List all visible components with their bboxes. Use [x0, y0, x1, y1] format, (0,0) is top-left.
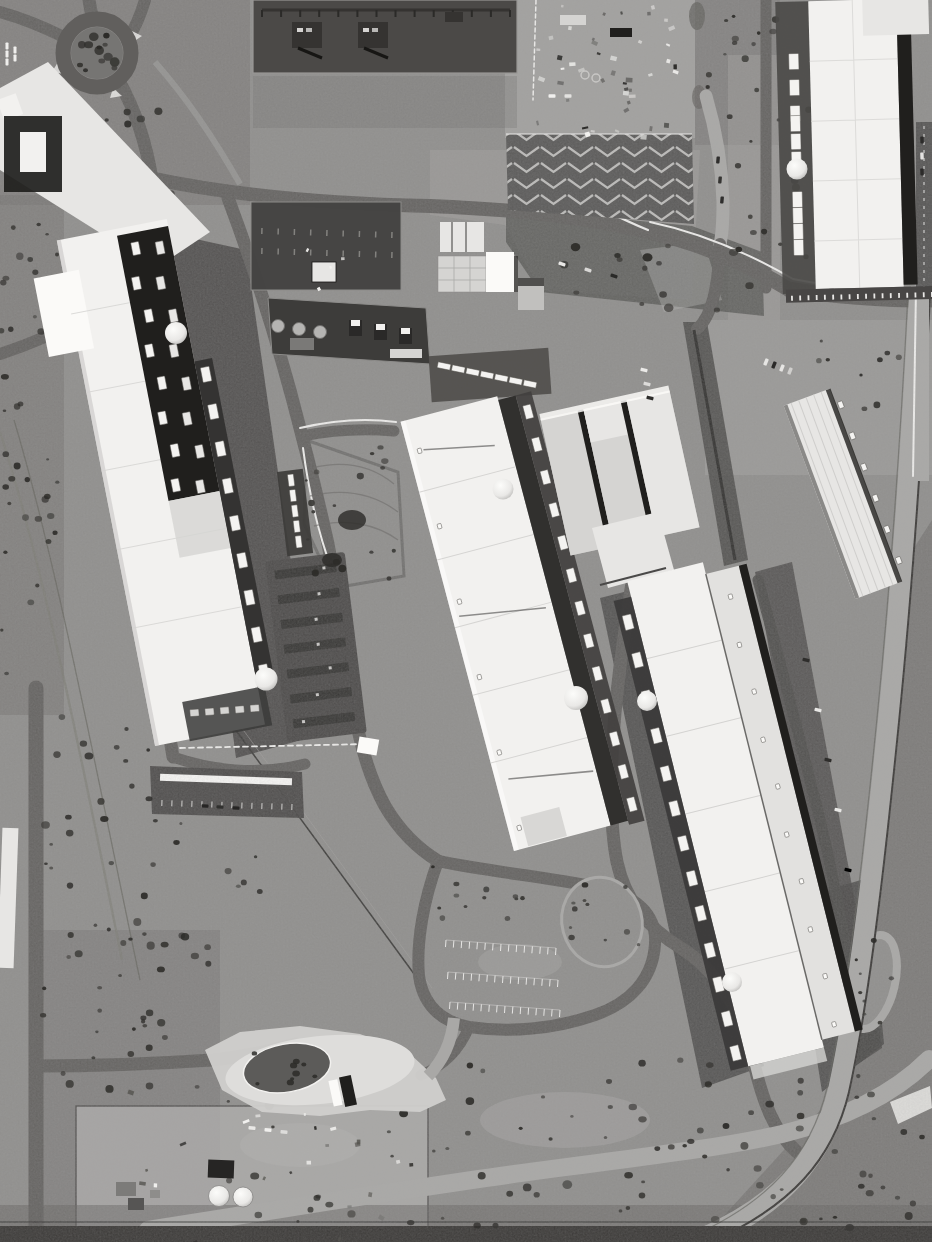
clutter [357, 1140, 361, 1145]
tree [112, 66, 118, 71]
transformer-top [376, 324, 385, 330]
bush [40, 1013, 46, 1017]
clutter [561, 5, 564, 8]
bush [614, 253, 620, 258]
vehicle [216, 805, 223, 809]
bush [3, 451, 10, 457]
bush [642, 266, 647, 271]
cooling-unit [789, 79, 799, 95]
bush [94, 924, 98, 927]
bush [312, 570, 319, 577]
bush [466, 1097, 475, 1105]
bush [654, 1146, 660, 1151]
cooling-unit [220, 707, 229, 715]
bush [723, 53, 726, 55]
cooling-unit [289, 489, 296, 502]
transformer [292, 22, 322, 48]
bush [14, 463, 21, 470]
bush [236, 885, 241, 888]
bush [75, 950, 83, 957]
equipment-building [390, 349, 422, 358]
bush [858, 1184, 865, 1189]
storage-tank [233, 1187, 253, 1207]
cooling-unit [793, 223, 803, 239]
bush [855, 958, 858, 961]
tree [103, 33, 109, 39]
vehicle [920, 168, 924, 175]
clutter [566, 99, 569, 102]
cooling-unit [752, 689, 757, 695]
bush [53, 531, 58, 536]
bush [732, 41, 737, 45]
bush [153, 819, 158, 823]
cooling-unit [793, 207, 803, 223]
dome-tank [637, 691, 657, 711]
bush [570, 1115, 573, 1118]
bush [27, 599, 34, 605]
bush [44, 863, 48, 866]
warehouse-roof [438, 256, 486, 292]
bush [14, 403, 20, 409]
storage-tank [209, 1186, 230, 1207]
bush [381, 458, 388, 464]
vehicle [716, 156, 720, 163]
bush [569, 926, 572, 929]
bush [638, 1116, 646, 1122]
bush [181, 933, 189, 941]
cooling-unit [789, 53, 799, 69]
bush [3, 409, 7, 412]
transformer [358, 22, 388, 48]
bush [885, 351, 891, 356]
bush [66, 830, 74, 837]
bush [677, 1058, 683, 1063]
bush [687, 1139, 694, 1144]
vehicle [248, 1126, 255, 1130]
shrub [293, 1059, 300, 1064]
bush [377, 445, 383, 449]
bush [771, 1194, 776, 1199]
clutter [341, 257, 345, 260]
bush [483, 887, 489, 893]
bush [35, 516, 42, 522]
bush [697, 1128, 704, 1134]
bush [742, 55, 749, 62]
clutter [568, 26, 572, 30]
bush [706, 1062, 714, 1068]
tree [102, 43, 107, 47]
bush [85, 752, 94, 759]
bush [859, 373, 862, 376]
bush [866, 1190, 874, 1196]
bush [107, 928, 111, 932]
shrub [292, 1071, 300, 1077]
bush [61, 1071, 66, 1076]
shrub [255, 1082, 259, 1085]
bush [833, 1216, 837, 1219]
bush [534, 1192, 540, 1198]
bush [624, 929, 630, 935]
bush [863, 1013, 867, 1016]
cooling-unit [792, 191, 802, 207]
tree-cluster [338, 510, 366, 530]
bush [629, 1104, 637, 1111]
clutter [409, 1163, 413, 1167]
bush [855, 1096, 860, 1100]
transformer-detail [297, 28, 303, 32]
bush [832, 1149, 838, 1154]
clutter [536, 48, 540, 51]
dome-tank [493, 479, 514, 500]
bush [874, 402, 881, 409]
bush [541, 1095, 545, 1098]
transformer-top [401, 328, 410, 334]
bush [3, 551, 7, 554]
bush [97, 1008, 102, 1012]
bush [33, 315, 37, 318]
bush [732, 15, 736, 18]
bush [761, 229, 767, 235]
tree [77, 63, 83, 68]
bush [682, 1144, 687, 1148]
vehicle [549, 94, 556, 97]
dome-tank [722, 972, 742, 992]
bush [296, 1220, 299, 1223]
bush [27, 257, 33, 262]
cooling-unit [190, 709, 199, 717]
bush [549, 1137, 553, 1141]
bush [606, 1079, 612, 1084]
dome-tank [255, 668, 278, 691]
bush [735, 163, 741, 168]
bush [895, 1196, 900, 1200]
aerial-photo-canvas [0, 0, 932, 1242]
bush [407, 1220, 414, 1225]
bush [664, 303, 674, 312]
bush [736, 247, 743, 252]
bush [608, 1105, 613, 1109]
switchgear [445, 12, 463, 22]
oil-tank [314, 326, 327, 339]
bush [369, 551, 373, 554]
bush [656, 261, 662, 266]
bush [431, 865, 435, 868]
clutter [640, 134, 647, 140]
cooling-unit [295, 535, 302, 548]
bush [147, 942, 155, 950]
bush [25, 477, 30, 482]
clutter [629, 89, 632, 92]
trailer-yard [429, 348, 552, 402]
cooling-unit [761, 737, 766, 743]
bush [751, 42, 756, 46]
bush [308, 1207, 314, 1213]
bush [573, 291, 579, 295]
bush [726, 1168, 730, 1171]
vehicle [6, 43, 9, 50]
shrub [287, 1080, 294, 1086]
bush [59, 714, 66, 720]
bush [380, 466, 385, 470]
bush [124, 121, 131, 128]
bush [146, 1010, 153, 1017]
bush [464, 905, 468, 908]
bush [11, 225, 16, 230]
bush [571, 243, 581, 251]
dome-tank [787, 159, 808, 180]
bush [619, 1209, 623, 1212]
vehicle [718, 176, 722, 183]
vehicle [6, 59, 9, 66]
bush [724, 19, 728, 22]
clutter [325, 1144, 329, 1147]
barn-shed [208, 1160, 235, 1179]
bush [506, 1191, 513, 1197]
bush [45, 233, 48, 236]
materials [560, 15, 586, 25]
bush [745, 282, 753, 289]
bush [748, 1110, 754, 1115]
cooling-unit [205, 708, 214, 716]
bush [820, 340, 823, 343]
clutter [304, 1113, 306, 1116]
bush [55, 252, 59, 256]
bush [390, 1155, 393, 1158]
control-building [312, 262, 336, 282]
bush [604, 939, 607, 942]
clutter [255, 1114, 260, 1117]
cooling-unit [287, 474, 294, 487]
transformer-top [351, 320, 360, 326]
materials [610, 28, 632, 37]
bush [705, 1081, 712, 1087]
bush [173, 840, 179, 845]
bush [157, 1019, 165, 1026]
roundabout [63, 19, 131, 87]
cooling-unit [775, 784, 780, 790]
bush [204, 944, 211, 950]
bush [714, 308, 720, 313]
substation-mid-lower [268, 298, 430, 364]
bush [877, 357, 883, 362]
dome-tank [564, 686, 588, 710]
bush [706, 72, 712, 77]
bush [157, 967, 165, 973]
bush [437, 907, 441, 910]
bush [706, 85, 710, 89]
shed-roofs [440, 222, 484, 252]
office-courtyard [20, 132, 46, 172]
bush [572, 906, 578, 911]
bush [754, 88, 759, 93]
bush [756, 1182, 764, 1188]
bush [124, 727, 128, 731]
bush [7, 502, 11, 505]
bush [314, 470, 320, 475]
bush [514, 898, 518, 901]
bush [568, 935, 574, 941]
bush [800, 1218, 808, 1225]
cooling-unit [250, 704, 259, 712]
cooling-unit [728, 594, 733, 600]
bush [798, 1078, 804, 1084]
bush [723, 1123, 730, 1129]
clutter [347, 1205, 351, 1208]
cooling-unit [291, 505, 298, 518]
bush [8, 327, 13, 332]
bush [604, 1136, 607, 1139]
bush [105, 1085, 113, 1093]
bush [453, 882, 459, 886]
bush [47, 513, 54, 519]
clutter [569, 62, 576, 66]
equipment-pad [290, 338, 314, 350]
bush [754, 1165, 762, 1171]
bush [123, 759, 128, 763]
bush [638, 1060, 645, 1067]
shadow [514, 256, 518, 292]
bush [142, 932, 147, 936]
bush [816, 358, 822, 363]
bush [769, 29, 777, 34]
bush [740, 1142, 748, 1150]
bush [826, 358, 830, 361]
vehicle [232, 806, 239, 810]
bush [35, 583, 39, 587]
bush [55, 481, 59, 484]
bush [42, 987, 46, 991]
bush [856, 1074, 860, 1078]
bush [42, 496, 49, 503]
bush [254, 1212, 262, 1218]
vehicle [280, 1130, 287, 1134]
datacenter-northeast [775, 0, 932, 303]
bush [571, 901, 575, 904]
bush [659, 291, 667, 298]
substation-mid-upper [251, 202, 401, 290]
vehicle [720, 196, 724, 203]
bush [482, 896, 486, 899]
bush [146, 1083, 154, 1090]
vehicle [264, 1128, 271, 1132]
bush [105, 118, 109, 122]
bush [67, 883, 73, 889]
clutter [647, 12, 651, 16]
bush [257, 889, 263, 894]
bush [819, 1218, 823, 1221]
bush [765, 1101, 774, 1108]
shrub [301, 1063, 306, 1067]
bush [732, 36, 739, 42]
outbuilding-roof [518, 278, 544, 286]
footbridge [357, 736, 379, 755]
bush [2, 484, 9, 489]
vehicle [14, 47, 17, 54]
bush [41, 821, 50, 828]
cooling-unit [791, 133, 801, 149]
bush [750, 230, 757, 235]
bush [357, 473, 364, 480]
vehicle [920, 136, 924, 143]
bush [250, 1173, 259, 1180]
bush [129, 784, 134, 789]
bush [241, 880, 247, 886]
bush [702, 1155, 707, 1159]
bush [161, 942, 169, 948]
cooling-unit [235, 706, 244, 714]
bush [1, 374, 9, 380]
bush [867, 1092, 875, 1098]
bush [387, 1130, 391, 1133]
bush [440, 915, 446, 921]
bush [254, 855, 257, 858]
bush [757, 31, 761, 35]
clutter [626, 78, 633, 83]
cooling-unit [737, 642, 742, 648]
bush [347, 1210, 355, 1217]
transformer-detail [363, 28, 369, 32]
bush [53, 751, 60, 758]
bush [179, 822, 182, 825]
bush [862, 406, 868, 411]
bush [124, 109, 131, 116]
dome-tank [165, 322, 187, 344]
bush [338, 565, 346, 573]
bush [445, 1147, 449, 1150]
bush [905, 1212, 913, 1220]
bush [162, 1035, 168, 1040]
bush [146, 1045, 153, 1052]
tree [103, 53, 112, 61]
bush [22, 514, 29, 521]
bush [141, 893, 148, 900]
bush [333, 504, 337, 507]
clutter [629, 95, 636, 98]
bush [315, 1195, 321, 1199]
aerial-photo [0, 0, 932, 1242]
bush [370, 452, 375, 455]
bush [624, 1172, 633, 1179]
bush [910, 1201, 916, 1207]
bush [305, 479, 308, 481]
bush [668, 1144, 675, 1149]
bush [133, 918, 141, 926]
bush [4, 672, 9, 675]
bush [796, 1126, 804, 1132]
vehicle [14, 55, 17, 62]
bush [523, 1184, 532, 1192]
bush [142, 1024, 147, 1028]
bush [643, 253, 653, 261]
vehicle [565, 94, 572, 97]
bush [583, 899, 587, 902]
bush [97, 798, 104, 805]
clutter [623, 91, 629, 96]
bush [325, 1202, 333, 1208]
bush [95, 1030, 98, 1033]
bush [505, 916, 511, 921]
bush [454, 893, 460, 897]
bush [432, 1150, 436, 1153]
bush [66, 955, 71, 959]
bush [562, 1180, 572, 1189]
bush [128, 937, 133, 940]
bush [154, 107, 162, 115]
clutter [664, 123, 669, 128]
tree-cluster [322, 553, 342, 567]
cooling-unit [808, 927, 813, 933]
bush [32, 270, 38, 275]
